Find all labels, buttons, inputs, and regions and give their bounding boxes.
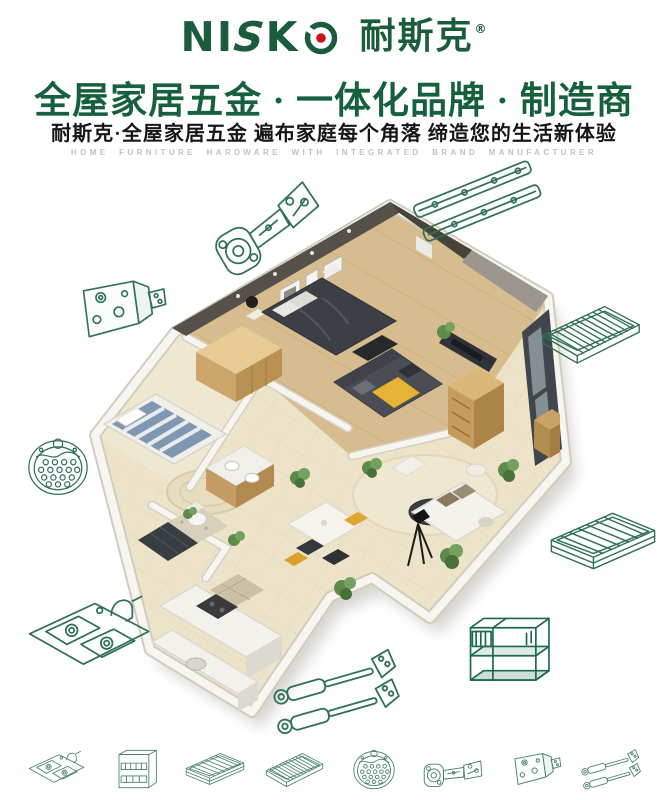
product-illustration-wire-basket	[544, 498, 662, 584]
mini-product-wire-tray	[262, 745, 326, 793]
cabinet-frame-icon	[103, 745, 167, 793]
poster-root: NISK 耐斯克® 全屋家居五金 · 一体化品牌 · 制造商 耐斯克·全屋家居五…	[0, 0, 668, 800]
wire-basket-icon	[544, 498, 662, 584]
organizer-rack-icon	[450, 588, 562, 703]
kitchen-sink-icon	[18, 578, 158, 692]
kitchen-sink-icon	[24, 745, 88, 793]
product-illustration-drainer	[12, 420, 104, 512]
product-illustration-gas-struts	[236, 640, 441, 742]
wire-shelf-icon	[524, 292, 656, 374]
bottom-product-strip	[0, 742, 668, 796]
mini-product-gas-struts	[580, 745, 644, 793]
mini-product-bracket	[501, 745, 565, 793]
mini-product-sink	[24, 745, 88, 793]
product-illustration-bracket	[56, 266, 176, 352]
product-illustration-wire-shelf	[524, 292, 656, 374]
mounting-bracket-icon	[501, 745, 565, 793]
sink-drainer-icon	[12, 420, 104, 512]
gas-struts-icon	[580, 745, 644, 793]
product-illustration-sink	[18, 578, 158, 692]
mini-product-hinge	[421, 745, 485, 793]
cabinet-hinge-icon	[421, 745, 485, 793]
mounting-bracket-icon	[56, 266, 176, 352]
sink-drainer-icon	[342, 745, 406, 793]
product-illustration-organizer-rack	[450, 588, 562, 703]
drawer-basket-icon	[183, 745, 247, 793]
wire-tray-icon	[262, 745, 326, 793]
gas-struts-icon	[236, 640, 441, 742]
mini-product-cabinet-frame	[103, 745, 167, 793]
mini-product-drawer-basket	[183, 745, 247, 793]
mini-product-drainer	[342, 745, 406, 793]
